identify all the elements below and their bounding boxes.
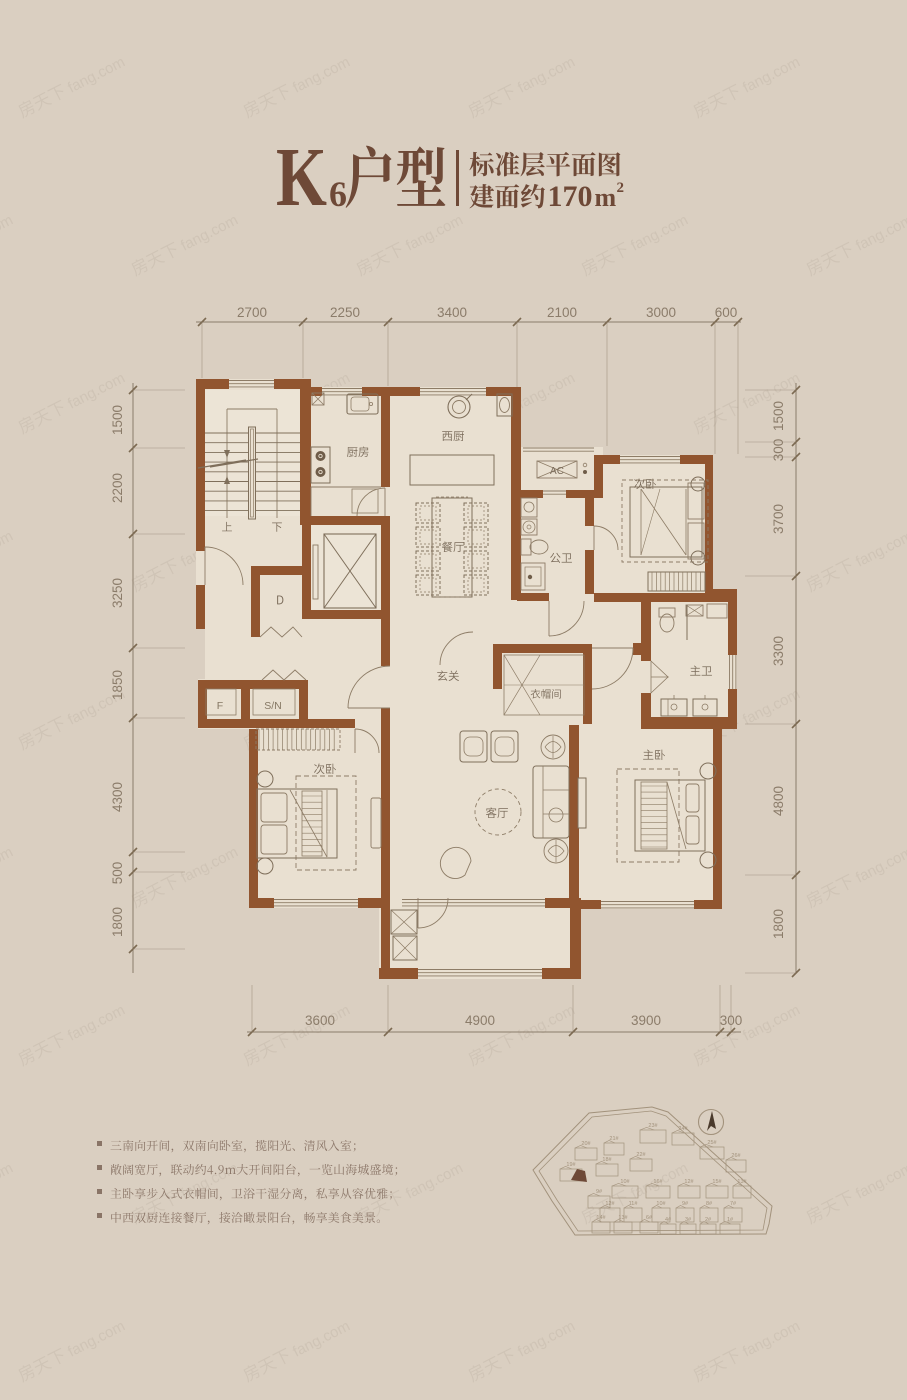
svg-text:8#: 8# — [706, 1201, 713, 1207]
svg-text:3700: 3700 — [771, 504, 786, 534]
svg-text:16#: 16# — [653, 1179, 663, 1185]
svg-text:300: 300 — [771, 439, 786, 462]
svg-text:1800: 1800 — [771, 909, 786, 939]
svg-text:1850: 1850 — [110, 670, 125, 700]
svg-text:300: 300 — [720, 1013, 743, 1028]
svg-text:3300: 3300 — [771, 636, 786, 666]
svg-text:1500: 1500 — [771, 401, 786, 431]
svg-text:3250: 3250 — [110, 578, 125, 608]
svg-text:22#: 22# — [636, 1152, 646, 1158]
svg-text:6#: 6# — [646, 1215, 653, 1221]
svg-text:24#: 24# — [678, 1126, 688, 1132]
svg-text:600: 600 — [715, 305, 738, 320]
svg-text:10#: 10# — [620, 1179, 630, 1185]
svg-text:2: 2 — [616, 180, 624, 196]
svg-text:20#: 20# — [581, 1141, 591, 1147]
svg-text:4800: 4800 — [771, 786, 786, 816]
svg-text:14#: 14# — [596, 1215, 606, 1221]
svg-text:15#: 15# — [712, 1179, 722, 1185]
svg-text:21#: 21# — [609, 1136, 619, 1142]
svg-text:13#: 13# — [618, 1215, 628, 1221]
svg-text:3#: 3# — [685, 1217, 692, 1223]
svg-text:4300: 4300 — [110, 782, 125, 812]
svg-text:2100: 2100 — [547, 305, 577, 320]
svg-text:S/N: S/N — [264, 700, 282, 712]
svg-text:13#: 13# — [737, 1179, 747, 1185]
svg-text:12#: 12# — [684, 1179, 694, 1185]
svg-text:9#: 9# — [682, 1201, 689, 1207]
svg-text:12#: 12# — [605, 1201, 615, 1207]
svg-text:2200: 2200 — [110, 473, 125, 503]
svg-text:26#: 26# — [731, 1153, 741, 1159]
svg-text:3400: 3400 — [437, 305, 467, 320]
svg-text:3600: 3600 — [305, 1013, 335, 1028]
svg-text:2#: 2# — [705, 1217, 712, 1223]
svg-text:1500: 1500 — [110, 405, 125, 435]
svg-text:4#: 4# — [665, 1217, 672, 1223]
svg-text:7#: 7# — [730, 1201, 737, 1207]
svg-text:23#: 23# — [648, 1123, 658, 1129]
svg-text:AC: AC — [550, 466, 564, 477]
svg-text:F: F — [217, 700, 223, 712]
svg-text:1#: 1# — [727, 1217, 734, 1223]
svg-text:m: m — [594, 183, 616, 212]
svg-text:2250: 2250 — [330, 305, 360, 320]
svg-text:25#: 25# — [707, 1140, 717, 1146]
svg-text:9#: 9# — [596, 1189, 603, 1195]
svg-text:2700: 2700 — [237, 305, 267, 320]
svg-text:170: 170 — [547, 180, 592, 213]
svg-text:10#: 10# — [656, 1201, 666, 1207]
svg-text:6: 6 — [329, 174, 347, 214]
svg-text:500: 500 — [110, 862, 125, 885]
svg-text:18#: 18# — [602, 1157, 612, 1163]
svg-text:19#: 19# — [566, 1162, 576, 1168]
svg-text:4900: 4900 — [465, 1013, 495, 1028]
svg-text:3900: 3900 — [631, 1013, 661, 1028]
svg-text:K: K — [276, 131, 327, 224]
svg-text:1800: 1800 — [110, 907, 125, 937]
svg-text:3000: 3000 — [646, 305, 676, 320]
svg-text:11#: 11# — [629, 1201, 639, 1207]
